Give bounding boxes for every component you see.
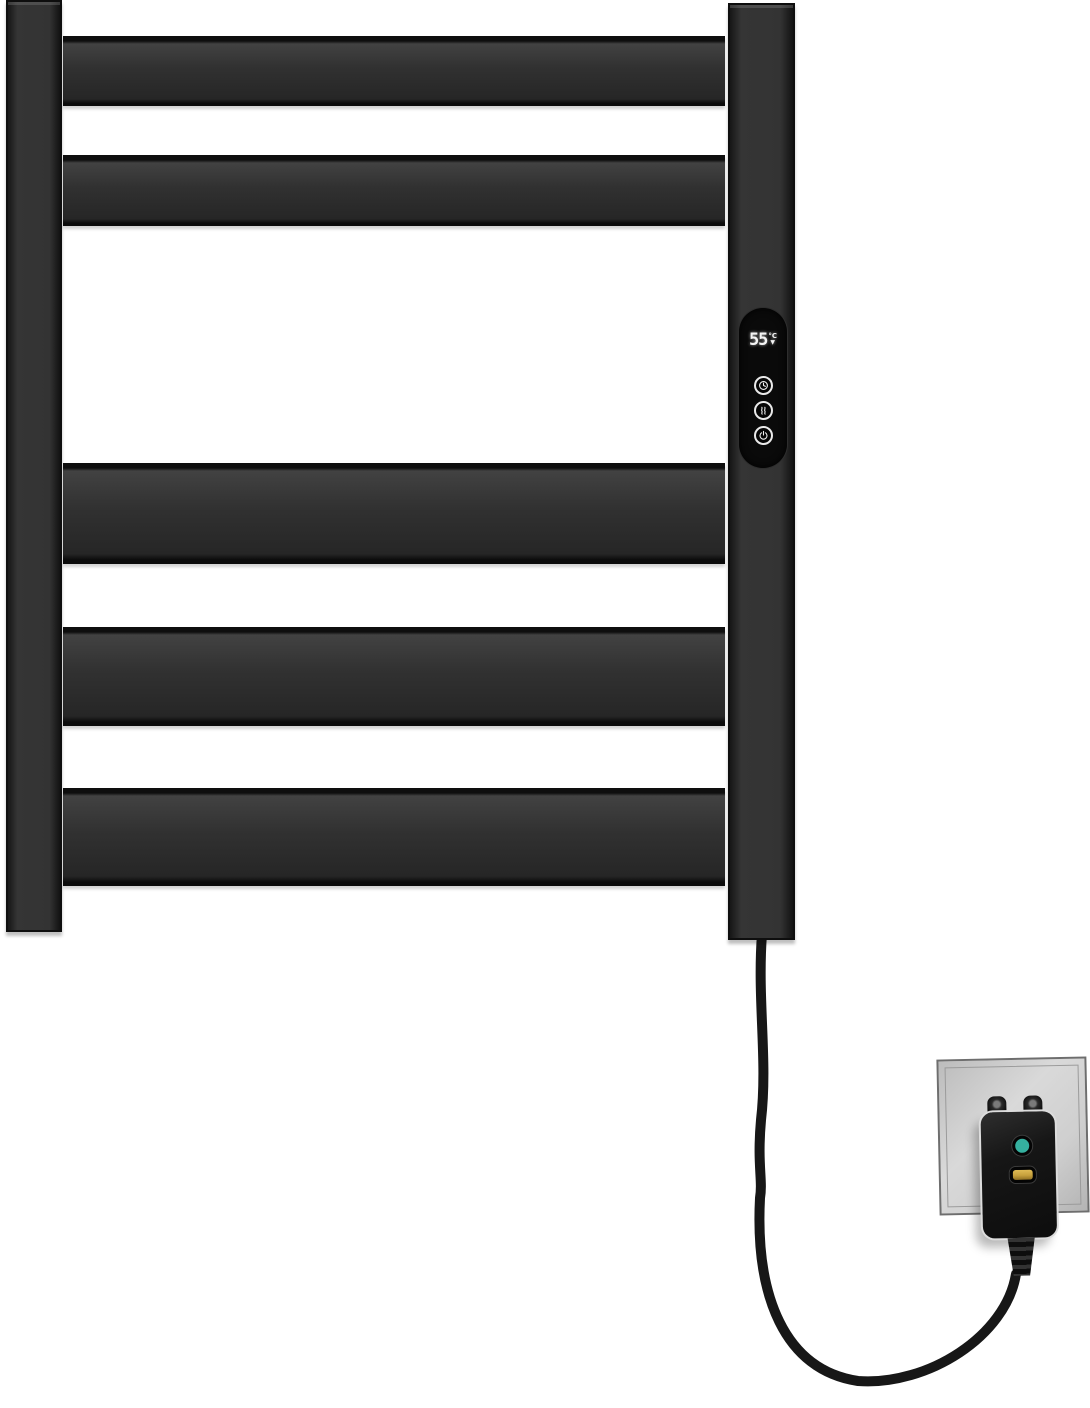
rail-post-right (728, 3, 795, 940)
timer-button[interactable] (754, 376, 773, 395)
towel-bar (63, 627, 725, 726)
wall-outlet (936, 1056, 1089, 1215)
towel-bar (63, 788, 725, 886)
plug-test-button[interactable] (1010, 1167, 1036, 1184)
steam-icon (758, 405, 769, 416)
temperature-unit-group: °C ▼ (768, 332, 777, 346)
towel-bar (63, 155, 725, 226)
power-button[interactable] (754, 426, 773, 445)
down-arrow-indicator: ▼ (770, 340, 775, 346)
power-icon (758, 430, 769, 441)
rail-post-left (6, 0, 62, 932)
control-panel: 55 °C ▼ (739, 308, 787, 468)
product-photo: 55 °C ▼ (0, 0, 1090, 1408)
clock-icon (758, 380, 769, 391)
towel-bar (63, 463, 725, 564)
panel-buttons (739, 376, 787, 445)
temperature-value: 55 (749, 332, 767, 349)
heat-button[interactable] (754, 401, 773, 420)
towel-bar (63, 36, 725, 106)
temperature-display: 55 °C ▼ (739, 332, 787, 349)
